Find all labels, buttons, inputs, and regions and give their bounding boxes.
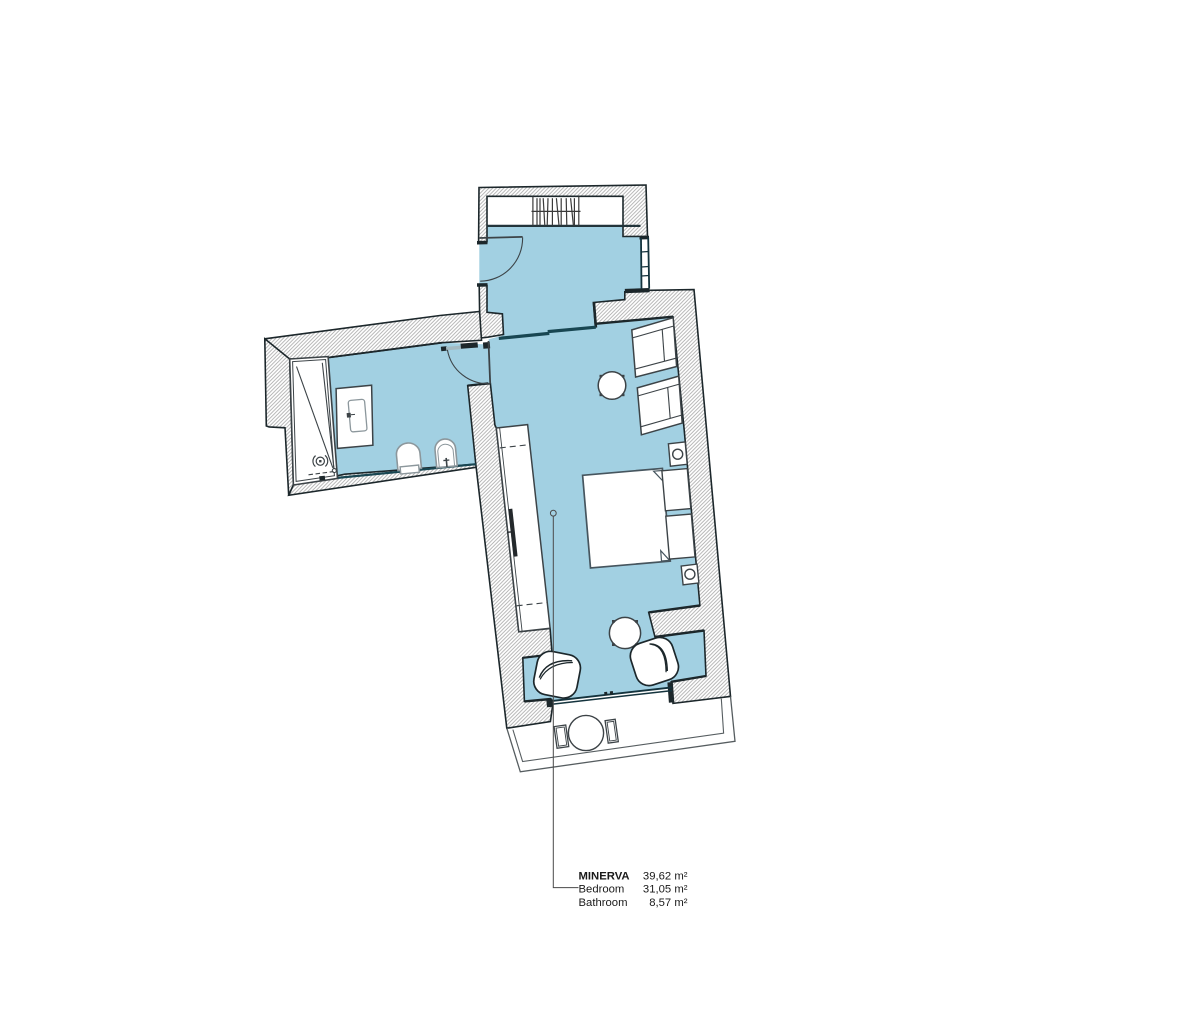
svg-text:Bedroom: Bedroom [579,884,625,896]
svg-text:8,57 m²: 8,57 m² [649,897,688,909]
svg-text:39,62 m²: 39,62 m² [643,870,688,882]
svg-text:MINERVA: MINERVA [579,870,630,882]
svg-text:31,05 m²: 31,05 m² [643,884,688,896]
svg-text:Bathroom: Bathroom [579,897,628,909]
